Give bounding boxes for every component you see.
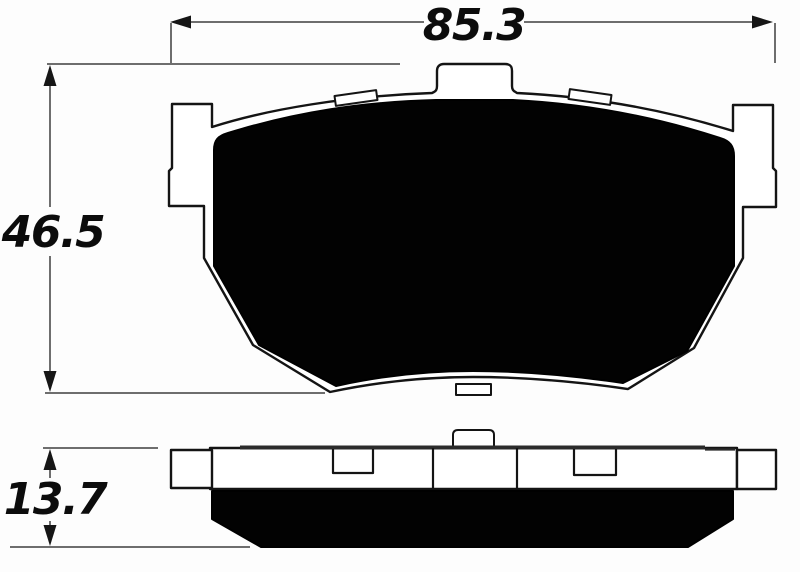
mounting-tab-side <box>453 430 494 448</box>
thickness-arrow-bottom-icon <box>44 525 57 546</box>
width-arrow-right-icon <box>752 16 773 29</box>
friction-material-side <box>212 491 733 547</box>
front-view <box>169 64 776 395</box>
brake-pad-technical-drawing: 85.3 46.5 13.7 <box>0 0 800 572</box>
dimension-height-label: 46.5 <box>1 207 105 258</box>
thickness-arrow-top-icon <box>44 449 57 470</box>
dimension-thickness-label: 13.7 <box>4 474 108 525</box>
bottom-notch <box>456 384 491 395</box>
backing-plate-strip <box>210 448 737 489</box>
height-arrow-top-icon <box>44 65 57 86</box>
dimension-width: 85.3 <box>170 0 775 64</box>
height-arrow-bottom-icon <box>44 371 57 392</box>
dimension-width-label: 85.3 <box>423 0 526 51</box>
friction-material-front <box>214 100 734 386</box>
side-view <box>171 430 776 547</box>
plate-end-cap-right <box>737 450 776 489</box>
plate-end-cap-left <box>171 450 212 488</box>
width-arrow-left-icon <box>170 16 191 29</box>
drawing-canvas: 85.3 46.5 13.7 <box>0 0 800 572</box>
